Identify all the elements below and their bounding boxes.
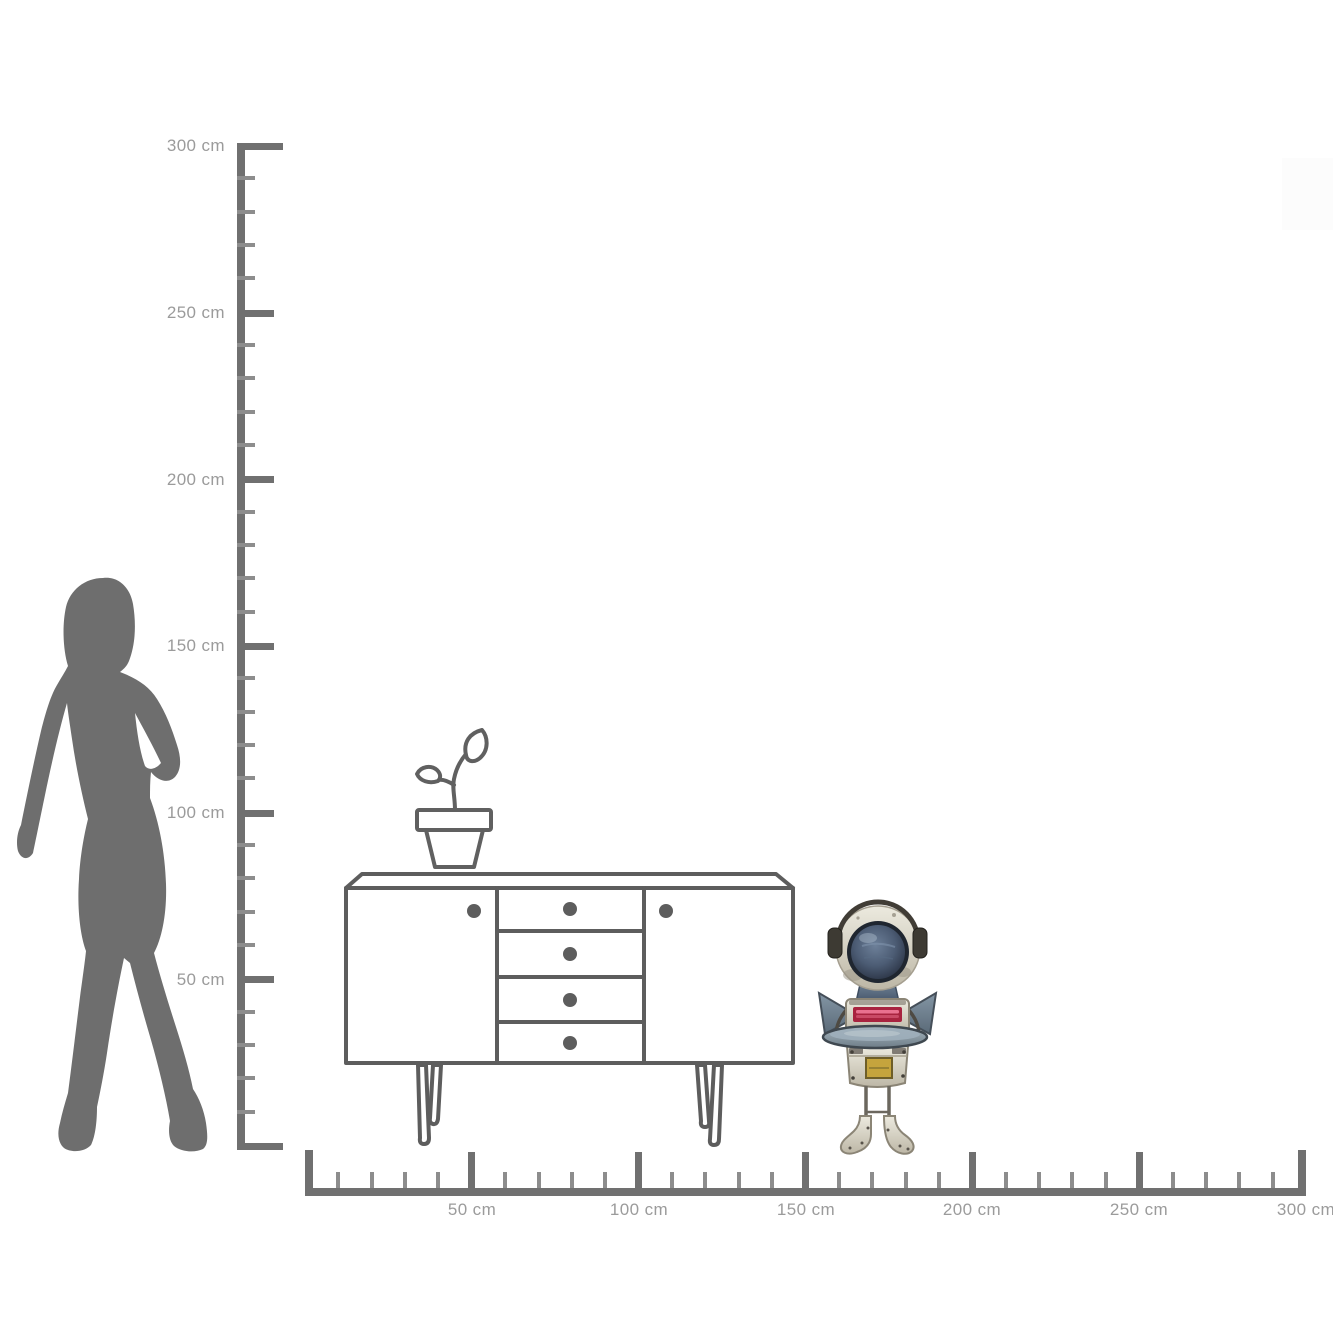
door-knob [467,904,481,918]
scale-diagram: 300 cm 250 cm 200 cm 150 cm 100 cm 50 cm… [0,0,1333,1333]
plant-pot-rim [417,810,491,830]
robot-red-slot [853,1007,902,1022]
horizontal-minor-tick [336,1172,340,1188]
vertical-minor-tick [237,176,255,180]
robot-ear-cup-left [828,928,842,958]
vertical-major-tick [237,810,274,817]
horizontal-ruler-end-tick [1298,1150,1306,1196]
vertical-minor-tick [237,210,255,214]
vertical-minor-tick [237,710,255,714]
horizontal-minor-tick [1237,1172,1241,1188]
sideboard-outline [346,874,793,1145]
door-knob [659,904,673,918]
vertical-major-tick [237,310,274,317]
horizontal-minor-tick [770,1172,774,1188]
horizontal-minor-tick [837,1172,841,1188]
vertical-minor-tick [237,576,255,580]
horizontal-major-tick [468,1152,475,1188]
vertical-minor-tick [237,776,255,780]
vertical-ruler-label-50: 50 cm [118,968,225,992]
horizontal-minor-tick [603,1172,607,1188]
drawer-knob [563,1036,577,1050]
robot-figurine [819,902,936,1154]
vertical-minor-tick [237,676,255,680]
woman-silhouette [17,578,207,1152]
horizontal-minor-tick [904,1172,908,1188]
horizontal-ruler-label-100: 100 cm [591,1199,687,1221]
robot-ear-cup-right [913,928,927,958]
vertical-minor-tick [237,1110,255,1114]
horizontal-ruler-label-200: 200 cm [924,1199,1020,1221]
sideboard-leg-back-right [697,1065,709,1127]
vertical-minor-tick [237,843,255,847]
vertical-major-tick [237,1143,283,1150]
vertical-minor-tick [237,376,255,380]
horizontal-ruler-line [305,1188,1306,1196]
sideboard-top [346,874,793,888]
vertical-ruler-label-300: 300 cm [118,134,225,158]
horizontal-minor-tick [737,1172,741,1188]
vertical-ruler-label-150: 150 cm [118,634,225,658]
horizontal-major-tick [635,1152,642,1188]
plant-pot-body [426,830,483,867]
horizontal-minor-tick [870,1172,874,1188]
horizontal-minor-tick [1004,1172,1008,1188]
potted-plant-outline [417,730,491,867]
vertical-major-tick [237,476,274,483]
horizontal-ruler-label-50: 50 cm [424,1199,520,1221]
horizontal-minor-tick [937,1172,941,1188]
horizontal-minor-tick [703,1172,707,1188]
horizontal-minor-tick [1271,1172,1275,1188]
vertical-major-tick [237,643,274,650]
horizontal-minor-tick [537,1172,541,1188]
vertical-minor-tick [237,443,255,447]
vertical-minor-tick [237,943,255,947]
horizontal-minor-tick [670,1172,674,1188]
sideboard-leg-front-left [418,1065,429,1144]
drawer-knob [563,993,577,1007]
vertical-major-tick [237,976,274,983]
horizontal-ruler-label-250: 250 cm [1091,1199,1187,1221]
horizontal-minor-tick [503,1172,507,1188]
sideboard-leg-back-left [430,1065,441,1124]
horizontal-minor-tick [1070,1172,1074,1188]
vertical-ruler-label-200: 200 cm [118,468,225,492]
horizontal-minor-tick [1104,1172,1108,1188]
vertical-minor-tick [237,910,255,914]
vertical-minor-tick [237,243,255,247]
plant-leaf-right [465,730,486,761]
horizontal-ruler-label-300: 300 cm [1258,1199,1333,1221]
drawer-knob [563,947,577,961]
horizontal-major-tick [802,1152,809,1188]
plant-stem [453,754,466,810]
robot-boot-left [841,1116,871,1154]
vertical-minor-tick [237,510,255,514]
horizontal-minor-tick [1171,1172,1175,1188]
robot-dome-lens [851,925,905,979]
vertical-minor-tick [237,1010,255,1014]
vertical-minor-tick [237,876,255,880]
horizontal-minor-tick [1037,1172,1041,1188]
drawer-knob [563,902,577,916]
vertical-minor-tick [237,1076,255,1080]
horizontal-major-tick [969,1152,976,1188]
diagram-artwork [0,0,1333,1333]
horizontal-ruler-end-tick [305,1150,313,1196]
horizontal-minor-tick [436,1172,440,1188]
vertical-minor-tick [237,343,255,347]
horizontal-minor-tick [403,1172,407,1188]
vertical-minor-tick [237,610,255,614]
sideboard-leg-front-right [710,1065,722,1145]
vertical-major-tick [237,143,283,150]
vertical-minor-tick [237,1043,255,1047]
vertical-minor-tick [237,276,255,280]
vertical-ruler-label-250: 250 cm [118,301,225,325]
horizontal-minor-tick [1204,1172,1208,1188]
faint-background-artifact [1282,158,1333,230]
plant-leaf-left [417,767,440,782]
horizontal-ruler-label-150: 150 cm [758,1199,854,1221]
horizontal-minor-tick [570,1172,574,1188]
vertical-minor-tick [237,743,255,747]
horizontal-major-tick [1136,1152,1143,1188]
horizontal-minor-tick [370,1172,374,1188]
vertical-minor-tick [237,410,255,414]
vertical-ruler-label-100: 100 cm [118,801,225,825]
vertical-minor-tick [237,543,255,547]
